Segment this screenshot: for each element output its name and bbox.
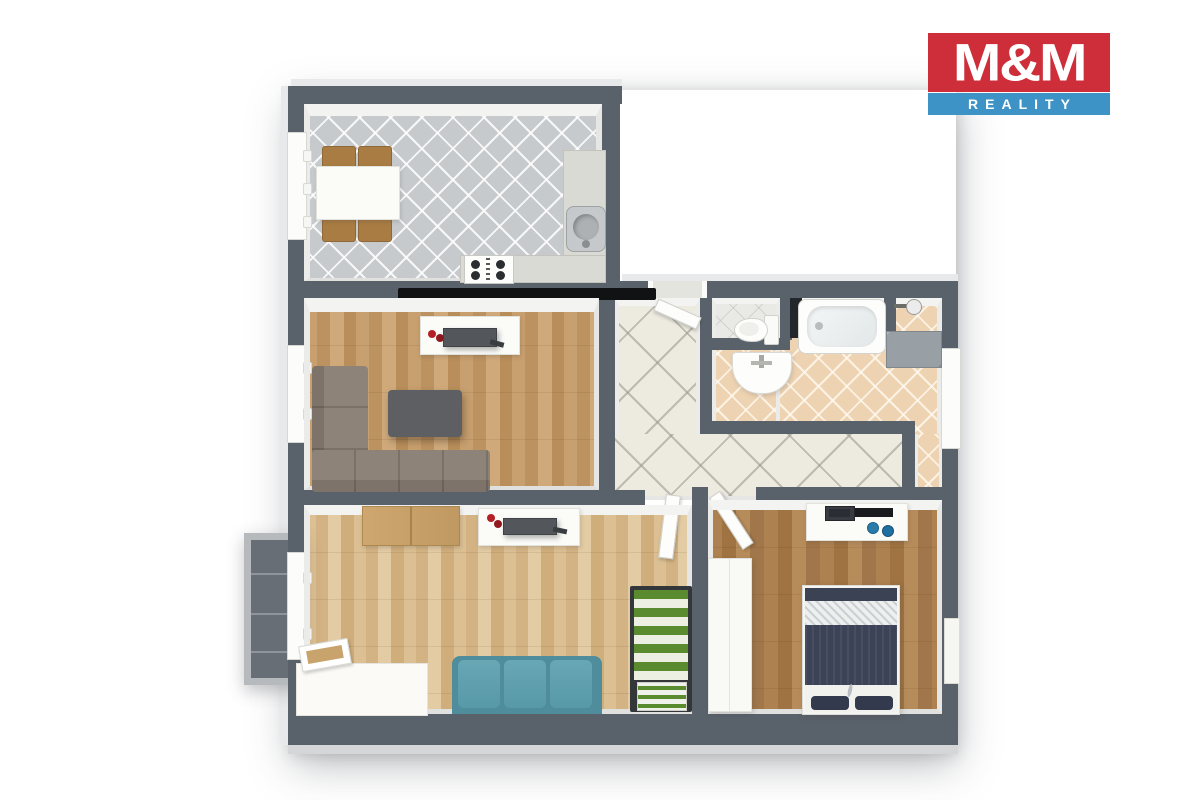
corner-desk [296, 663, 428, 716]
wall-bedroom-top [756, 487, 958, 500]
bathtub [798, 299, 886, 354]
tv-cabinet [420, 316, 520, 355]
wall-tv [398, 288, 656, 300]
wall-wc-left [700, 298, 712, 434]
window-handle [303, 572, 312, 584]
living-room-window [287, 345, 307, 443]
wall-shelf [944, 618, 960, 684]
logo-mm-text: M&M [953, 32, 1085, 93]
desk-decor-blue [882, 525, 894, 537]
double-bed [802, 585, 900, 715]
outer-trim-top-right [622, 274, 958, 281]
floor-plan-image: M&M REALITY [0, 0, 1200, 800]
teal-sofa [452, 656, 602, 714]
window-handle [303, 183, 312, 195]
bathroom-window [941, 348, 961, 449]
window-handle [303, 408, 312, 420]
desk-accessory [855, 508, 893, 517]
stove-hob [464, 255, 514, 284]
bed-head-band [805, 588, 897, 601]
faucet [751, 361, 772, 365]
bed-blanket [805, 625, 897, 685]
wall-living-hallway [599, 281, 615, 508]
logo: M&M REALITY [928, 33, 1110, 115]
bedroom-desk [806, 503, 908, 541]
red-decor [494, 520, 502, 528]
laptop [825, 506, 855, 521]
bathtub-drain [815, 322, 823, 330]
balcony-door [287, 552, 307, 660]
desk-decor-blue [867, 522, 879, 534]
bed-pillow [855, 696, 893, 710]
single-bed-foot [637, 682, 687, 711]
red-decor [428, 330, 436, 338]
bed-pillow [811, 696, 849, 710]
faucet [582, 240, 590, 248]
outer-trim-top [291, 79, 622, 86]
toilet [734, 315, 780, 344]
bed-sheet [805, 601, 897, 625]
wall-second-room-top [291, 490, 645, 505]
corner-sofa [312, 450, 490, 492]
window-handle [303, 628, 312, 640]
tv-cabinet-2 [478, 508, 580, 546]
entrance-opening [650, 281, 705, 298]
entrance-frame-post [702, 281, 707, 298]
single-bed-mattress [634, 590, 688, 680]
tv-device [503, 518, 557, 535]
single-bed [630, 586, 692, 712]
logo-mm-block: M&M [928, 33, 1110, 92]
window-handle [303, 362, 312, 374]
logo-reality-block: REALITY [928, 93, 1110, 115]
wall-bathroom-bottom [700, 421, 915, 434]
wall-top-kitchen [291, 86, 622, 104]
wall-bedroom-left [692, 487, 708, 745]
kitchen-sink [566, 206, 606, 252]
dining-table [316, 166, 400, 220]
sideboard [362, 506, 460, 546]
outer-trim-bottom [288, 745, 958, 754]
logo-reality-text: REALITY [961, 96, 1077, 112]
window-handle [303, 216, 312, 228]
dining-chair [322, 218, 356, 242]
shower-head [906, 299, 922, 315]
wall-bottom [288, 714, 958, 745]
wardrobe [708, 558, 752, 712]
shower-tray [886, 331, 942, 368]
coffee-table [388, 390, 462, 437]
window-handle [303, 150, 312, 162]
dining-chair [358, 218, 392, 242]
